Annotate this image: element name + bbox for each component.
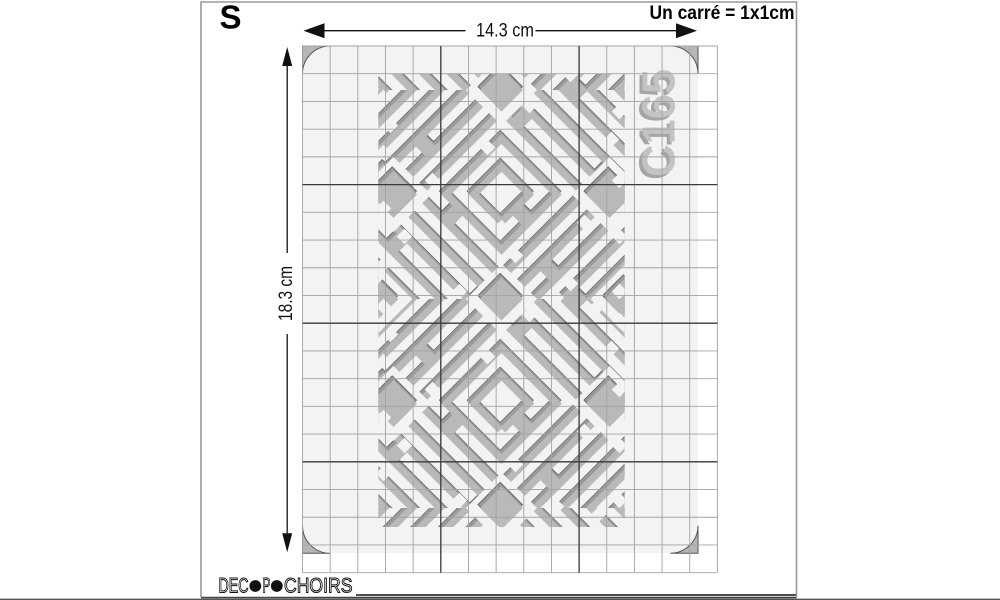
svg-text:CHOIRS: CHOIRS (284, 575, 353, 598)
svg-text:18.3 cm: 18.3 cm (276, 266, 297, 321)
svg-text:Un carré = 1x1cm: Un carré = 1x1cm (650, 3, 795, 24)
svg-text:P: P (263, 575, 271, 598)
svg-text:C165: C165 (633, 69, 685, 177)
svg-text:S: S (220, 0, 242, 36)
svg-text:DEC: DEC (219, 575, 249, 598)
svg-text:14.3 cm: 14.3 cm (476, 21, 534, 42)
